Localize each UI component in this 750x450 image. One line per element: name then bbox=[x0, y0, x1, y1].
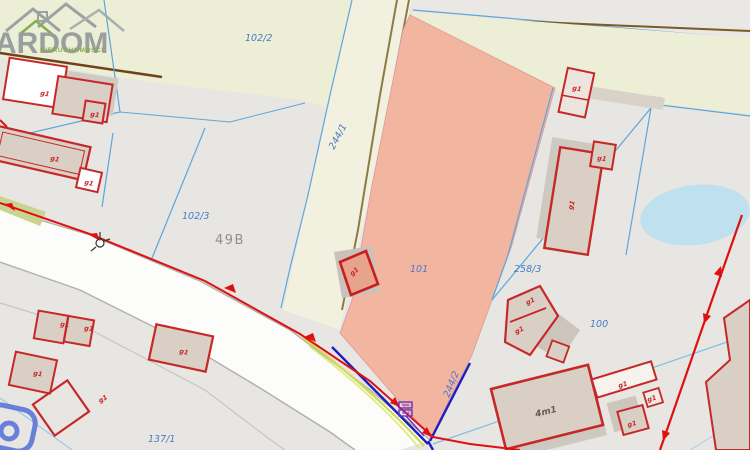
cadastral-map-canvas[interactable]: 102/2 244/1 102/3 101 258/3 100 244/2 13… bbox=[0, 0, 750, 450]
building-label: g1 bbox=[84, 324, 94, 333]
parcel-label: 102/3 bbox=[182, 211, 209, 222]
parcel-label: 137/1 bbox=[148, 434, 175, 445]
building-label: g1 bbox=[33, 369, 43, 378]
watermark-subtitle-text: NIERUCHOMOŚCI bbox=[40, 45, 104, 54]
building-label: g1 bbox=[60, 320, 70, 329]
watermark-brand-text: ARDOM bbox=[0, 27, 108, 60]
parcel-label: 258/3 bbox=[514, 264, 541, 275]
building-label: g1 bbox=[90, 110, 100, 119]
building-label: g1 bbox=[572, 84, 582, 93]
parcel-label: 102/2 bbox=[245, 33, 272, 44]
parcel-label: 101 bbox=[410, 264, 428, 275]
building-label: g1 bbox=[40, 89, 50, 98]
parcel-label: 100 bbox=[590, 319, 608, 330]
building-label: g1 bbox=[597, 154, 607, 163]
street-number-label: 49B bbox=[215, 233, 245, 248]
